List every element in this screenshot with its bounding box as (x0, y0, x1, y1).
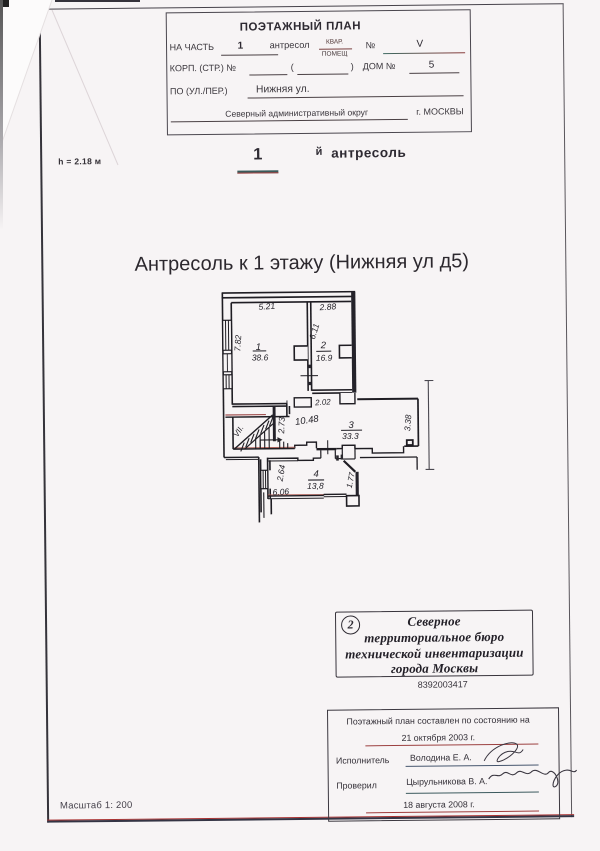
svg-text:5.21: 5.21 (259, 301, 277, 312)
svg-text:3.38: 3.38 (403, 414, 414, 432)
svg-text:7.82: 7.82 (233, 335, 244, 352)
svg-text:1.77: 1.77 (345, 472, 357, 490)
svg-text:2.88: 2.88 (319, 302, 337, 313)
svg-text:16.9: 16.9 (316, 353, 333, 363)
svg-text:2.02: 2.02 (314, 398, 332, 408)
svg-text:3: 3 (349, 420, 355, 431)
svg-text:2.73: 2.73 (276, 417, 287, 435)
svg-text:2.64: 2.64 (275, 464, 288, 483)
svg-text:38.6: 38.6 (252, 353, 269, 363)
svg-text:6.06: 6.06 (273, 487, 290, 498)
svg-text:13,8: 13,8 (307, 481, 324, 491)
svg-text:6.11: 6.11 (307, 322, 321, 340)
svg-text:4: 4 (314, 469, 319, 480)
svg-text:10.48: 10.48 (295, 414, 321, 429)
svg-text:2: 2 (320, 341, 327, 352)
svg-text:33.3: 33.3 (342, 431, 359, 441)
